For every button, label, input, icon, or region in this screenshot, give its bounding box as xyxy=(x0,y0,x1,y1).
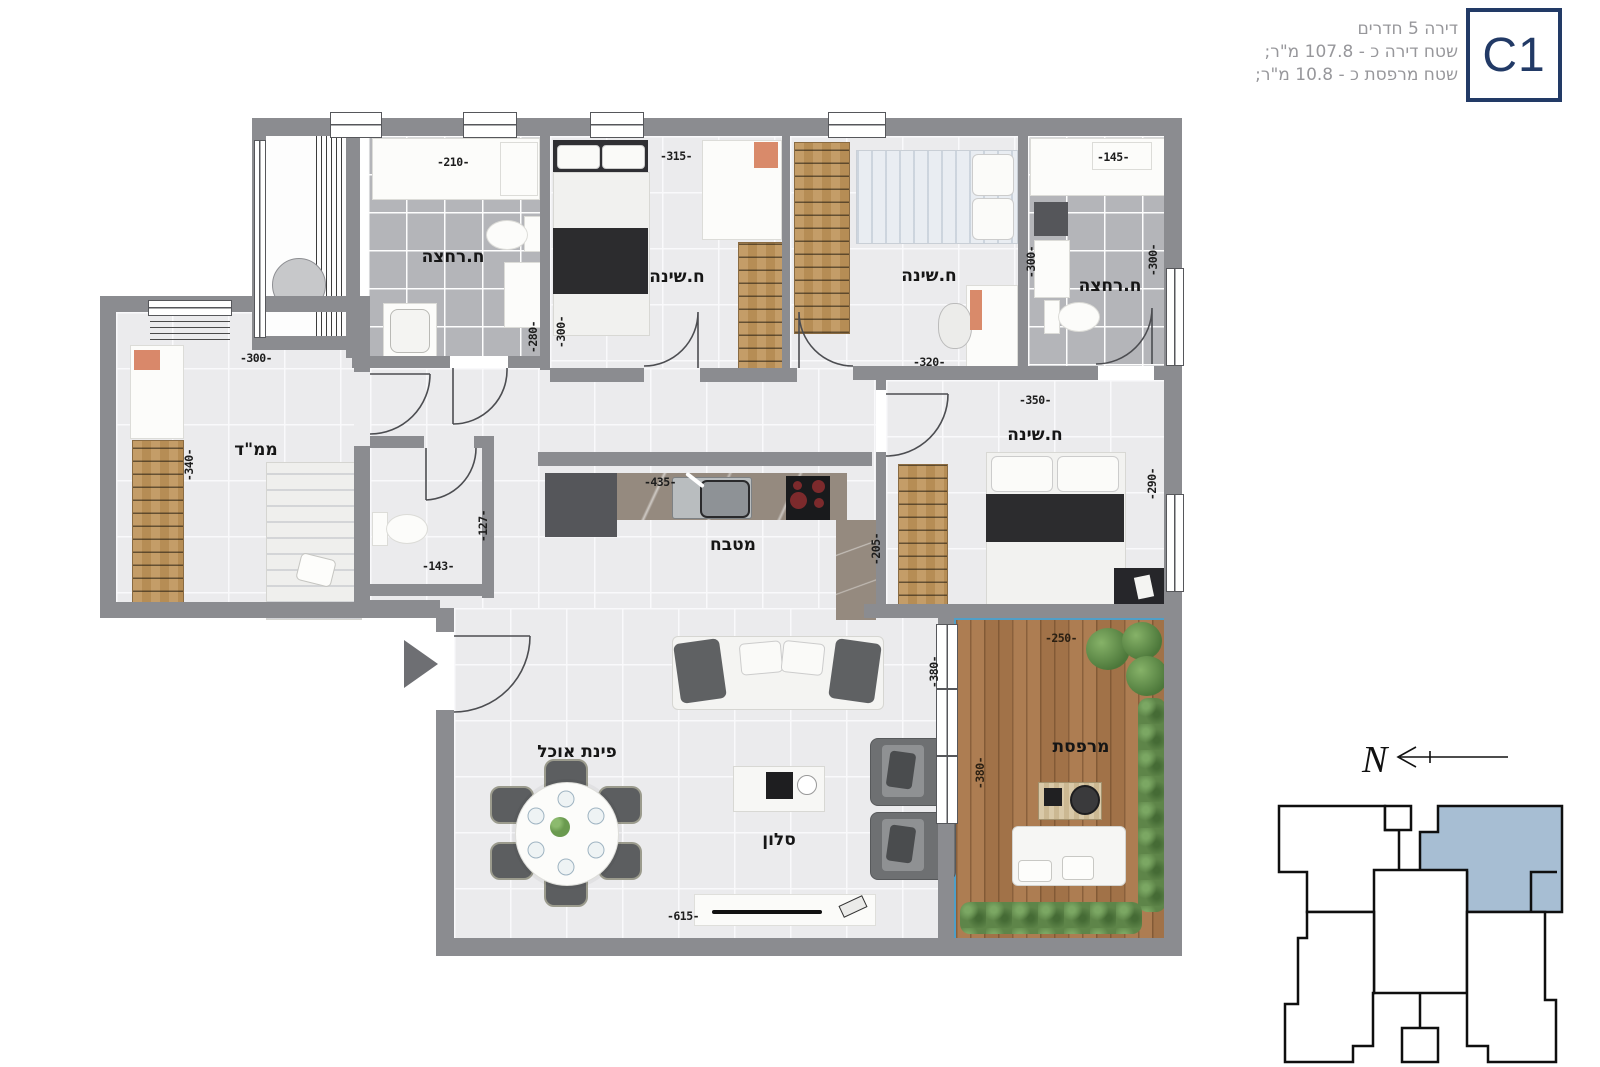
hedge-planter xyxy=(1138,698,1166,912)
cooktop-burner xyxy=(790,492,807,509)
bed1-pillow xyxy=(602,145,645,169)
bed2-pillow xyxy=(972,198,1014,240)
window xyxy=(148,300,232,316)
keyplan-unit xyxy=(1374,870,1467,993)
wall xyxy=(864,604,1182,618)
cooktop-burner xyxy=(814,498,824,508)
room-label-master: ח.שינה xyxy=(1007,425,1062,445)
outdoor-table-tray xyxy=(1044,788,1062,806)
cooktop-burner xyxy=(793,481,802,490)
bed1-closet-accent xyxy=(754,142,778,168)
wall xyxy=(938,822,954,954)
window xyxy=(330,112,382,138)
dim-living_depth: -380- xyxy=(927,656,941,688)
keyplan-stub xyxy=(1402,1028,1438,1062)
master-blanket xyxy=(986,494,1124,542)
bath1-sink xyxy=(500,142,538,196)
tv-icon xyxy=(712,910,822,914)
dim-bed2_width: -320- xyxy=(913,355,945,369)
entrance-arrow-icon xyxy=(404,640,438,688)
bed1-wardrobe xyxy=(738,242,784,376)
armchair-pillow xyxy=(886,824,917,863)
keyplan-highlighted-unit xyxy=(1420,806,1562,912)
wall xyxy=(876,366,886,390)
room-label-balcony: מרפסת xyxy=(1053,737,1110,757)
bed2-pillow xyxy=(972,154,1014,196)
window xyxy=(1166,494,1184,592)
dim-bath1_width: -210- xyxy=(437,155,469,169)
dim-mamad_width: -300- xyxy=(240,351,272,365)
wall xyxy=(540,130,550,370)
sofa-pillow xyxy=(780,640,825,676)
dim-balcony_depth: -380- xyxy=(973,757,987,789)
bed2-chair xyxy=(938,303,972,349)
place-setting xyxy=(528,808,545,825)
north-arrow-icon: N xyxy=(1361,739,1508,781)
wall xyxy=(550,368,644,382)
sofa-cushion-dark xyxy=(828,638,882,704)
bath1-shower-tray xyxy=(390,309,430,353)
place-setting xyxy=(528,842,545,859)
dim-bath1_depth: -280- xyxy=(526,321,540,353)
mamad-bed xyxy=(266,462,362,620)
coffee-table-tray xyxy=(766,772,793,799)
window xyxy=(254,140,266,338)
mamad-door-threshold xyxy=(354,372,370,446)
bed2-desk-accent xyxy=(970,290,982,330)
shutter-lines-icon xyxy=(150,316,230,340)
bath1-toilet-icon xyxy=(486,220,528,250)
wall xyxy=(938,608,954,624)
hedge-planter xyxy=(960,902,1142,934)
wall xyxy=(436,608,454,632)
bed2-wardrobe xyxy=(794,142,850,334)
window xyxy=(590,112,644,138)
bath2-cabinet xyxy=(1034,240,1070,298)
wc-toilet-icon xyxy=(386,514,428,544)
window xyxy=(828,112,886,138)
mamad-wardrobe xyxy=(132,440,184,606)
floor-plan: N ח.רחצה ח.שינה ח.שינה ח.רחצה ממ"ד מ xyxy=(0,0,1600,1067)
dim-bath2_depth: -300- xyxy=(1146,244,1160,276)
dim-bed1_width: -315- xyxy=(660,149,692,163)
room-label-mamad: ממ"ד xyxy=(234,440,277,460)
bed1-blanket xyxy=(553,228,648,294)
room-label-bed1: ח.שינה xyxy=(649,267,704,287)
wall xyxy=(436,710,454,956)
wall xyxy=(1154,366,1164,380)
dim-bed2_depth: -300- xyxy=(1024,246,1038,278)
kitchen-tall-unit xyxy=(545,473,617,537)
floorplan-page: דירה 5 חדרים שטח דירה כ - 107.8 מ"ר; שטח… xyxy=(0,0,1600,1067)
wall xyxy=(354,584,494,596)
coffee-table-bowl xyxy=(797,775,817,795)
outdoor-table-top xyxy=(1070,785,1100,815)
dim-kitchen_depth: -205- xyxy=(869,533,883,565)
room-label-dining: פינת אוכל xyxy=(537,742,617,762)
wall xyxy=(700,368,797,382)
room-label-bath1: ח.רחצה xyxy=(422,247,485,267)
wall xyxy=(100,296,370,312)
mamad-desk-chair xyxy=(134,350,160,370)
place-setting xyxy=(558,859,575,876)
place-setting xyxy=(558,791,575,808)
keyplan-unit xyxy=(1467,912,1556,1062)
dim-balcony_width: -250- xyxy=(1045,631,1077,645)
armchair-pillow xyxy=(886,750,917,789)
dim-wc_width: -143- xyxy=(422,559,454,573)
room-label-living: סלון xyxy=(762,830,796,850)
keyplan-unit xyxy=(1279,806,1399,912)
kitchen-sink-icon xyxy=(700,480,750,518)
wall xyxy=(354,446,370,602)
keyplan-stub xyxy=(1385,806,1411,830)
dim-living_width: -615- xyxy=(667,909,699,923)
room-label-bed2: ח.שינה xyxy=(901,266,956,286)
entry-threshold xyxy=(436,632,454,710)
place-setting xyxy=(588,842,605,859)
room-label-kitchen: מטבח xyxy=(710,535,756,555)
bath2-toilet-icon xyxy=(1058,302,1100,332)
wall xyxy=(853,366,1098,380)
keyplan-notch xyxy=(1531,872,1557,912)
master-pillow xyxy=(1057,456,1119,492)
dim-bed1_depth: -300- xyxy=(554,316,568,348)
dim-bath2_width: -145- xyxy=(1097,150,1129,164)
wall xyxy=(360,600,440,618)
room-label-bath2: ח.רחצה xyxy=(1079,276,1142,296)
dim-master_depth: -290- xyxy=(1145,468,1159,500)
wall xyxy=(354,296,370,372)
outdoor-cushion xyxy=(1018,860,1052,882)
cooktop-burner xyxy=(812,480,825,493)
plant-icon xyxy=(1122,622,1162,660)
sofa-pillow xyxy=(739,640,784,676)
wall xyxy=(538,452,872,466)
dim-wc_depth: -127- xyxy=(476,510,490,542)
bath1-cabinet xyxy=(504,262,542,328)
window xyxy=(1166,268,1184,366)
north-label: N xyxy=(1361,739,1390,781)
sofa-cushion-dark xyxy=(673,638,727,704)
dining-centerpiece xyxy=(550,817,570,837)
keyplan-unit xyxy=(1285,912,1374,1062)
dim-mamad_depth: -340- xyxy=(182,449,196,481)
bath2-washer-icon xyxy=(1034,202,1068,236)
wall xyxy=(1164,604,1182,956)
bed1-pillow xyxy=(557,145,600,169)
wall xyxy=(100,296,116,618)
master-wardrobe xyxy=(898,464,948,610)
sliding-door xyxy=(936,624,958,824)
wall xyxy=(436,938,1182,956)
wall xyxy=(100,602,370,618)
master-pillow xyxy=(991,456,1053,492)
dim-kitchen_width: -435- xyxy=(644,475,676,489)
dim-master_width: -350- xyxy=(1019,393,1051,407)
outdoor-cushion xyxy=(1062,856,1094,880)
plant-icon xyxy=(1126,656,1168,696)
wall xyxy=(508,356,550,368)
place-setting xyxy=(588,808,605,825)
keyplan xyxy=(1279,806,1562,1062)
window xyxy=(463,112,517,138)
wall xyxy=(782,130,790,370)
wall xyxy=(252,118,1182,136)
